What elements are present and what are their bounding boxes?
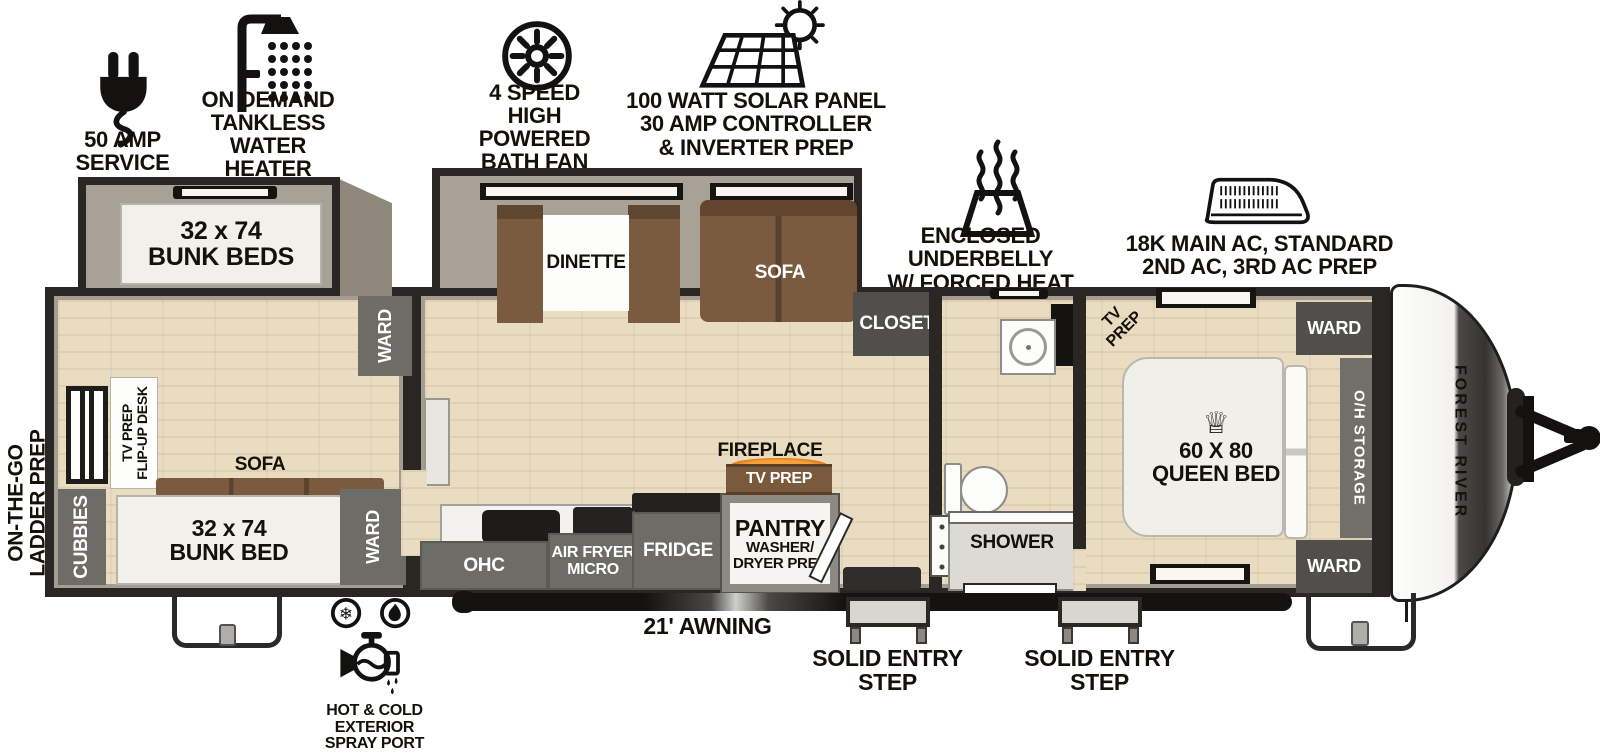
fridge-label: FRIDGE	[643, 541, 713, 561]
shower-label: SHOWER	[968, 532, 1056, 554]
living-sofa	[700, 200, 857, 322]
cubbies-label: CUBBIES	[62, 467, 102, 607]
crown-icon: ♕	[1203, 409, 1230, 439]
brand-label: FOREST RIVER	[1451, 365, 1468, 519]
storage-latch-right	[1351, 621, 1369, 646]
ward-front-top-label: WARD	[1307, 319, 1361, 338]
window-bedroom-top	[1156, 288, 1256, 308]
ward-front-top-box: WARD	[1296, 302, 1372, 355]
ac-unit-icon	[1198, 170, 1313, 232]
bedroom-passage	[1073, 549, 1086, 591]
ladder-prep-label: ON-THE-GO LADDER PREP	[5, 416, 51, 591]
pantry-label: PANTRY	[735, 516, 825, 540]
storage-latch-left	[219, 624, 236, 646]
tv-prep-cabinet: TV PREP	[726, 464, 832, 495]
bed-pillows	[1284, 365, 1308, 539]
queen-bed: ♕ 60 X 80 QUEEN BED	[1122, 357, 1284, 537]
bunk-bed-mattress: 32 x 74 BUNK BED	[116, 495, 342, 585]
feature-label-bath-fan: 4 SPEED HIGH POWERED BATH FAN	[452, 98, 617, 156]
svg-text:❄: ❄	[339, 605, 353, 625]
bunk-beds-label: 32 x 74 BUNK BEDS	[148, 218, 294, 271]
flip-up-desk-label: TV PREP FLIP-UP DESK	[113, 358, 157, 508]
ward-front-bottom-label: WARD	[1307, 557, 1361, 576]
window-bedroom-bottom	[1150, 564, 1250, 584]
solar-panel-icon	[695, 2, 825, 90]
window-sofa	[710, 183, 853, 200]
bunk-sofa-label: SOFA	[215, 454, 305, 476]
dinette-bench-left	[497, 205, 543, 323]
closet-label: CLOSET	[859, 314, 934, 334]
oh-storage-label: O/H STORAGE	[1351, 390, 1367, 506]
roof-vent-bunk-slide	[173, 186, 277, 199]
spray-port-label: HOT & COLD EXTERIOR SPRAY PORT	[292, 706, 457, 750]
wall-shelf-alcove	[424, 398, 450, 486]
ohc-box: OHC	[420, 541, 548, 590]
queen-bed-label: 60 X 80 QUEEN BED	[1152, 439, 1280, 485]
bunk-beds-mattress: 32 x 74 BUNK BEDS	[120, 203, 322, 285]
air-fryer-micro-box: AIR FRYER MICRO	[548, 533, 638, 590]
floorplan-canvas: 50 AMP SERVICE ON DEMAND TANKLESS WATER …	[0, 0, 1600, 753]
ward-front-bottom-box: WARD	[1296, 540, 1372, 593]
shower-glass-door	[948, 511, 1076, 524]
entry-step-1-foot-left	[850, 627, 861, 644]
entry-step-2-foot-right	[1128, 627, 1139, 644]
feature-label-solar: 100 WATT SOLAR PANEL 30 AMP CONTROLLER &…	[625, 93, 887, 155]
entry-step-1	[846, 597, 930, 627]
tv-prep-main-label: TV PREP	[746, 471, 812, 488]
entry-step-2	[1058, 597, 1142, 627]
feature-label-underbelly: ENCLOSED UNDERBELLY W/ FORCED HEAT	[868, 237, 1093, 281]
entry-door-mat	[843, 567, 921, 590]
entry-step-1-label: SOLID ENTRY STEP	[800, 646, 975, 694]
fridge-countertop	[632, 493, 724, 512]
feature-label-water-heater: ON DEMAND TANKLESS WATER HEATER	[192, 103, 344, 165]
hitch-ball	[1577, 426, 1600, 450]
entry-step-2-foot-left	[1062, 627, 1073, 644]
ohc-label: OHC	[463, 556, 504, 576]
entry-step-1-foot-right	[916, 627, 927, 644]
feature-label-ac: 18K MAIN AC, STANDARD 2ND AC, 3RD AC PRE…	[1122, 233, 1397, 277]
dinette-bench-right	[628, 205, 680, 323]
kitchen-stove	[573, 507, 633, 536]
dinette-table: DINETTE	[543, 215, 629, 311]
brand-text-wrap: FOREST RIVER	[1447, 337, 1471, 547]
bath-sink	[1000, 319, 1056, 375]
air-fryer-micro-label: AIR FRYER MICRO	[552, 545, 635, 579]
bunk-bed-label: 32 x 74 BUNK BED	[170, 516, 289, 564]
dinette-label: DINETTE	[546, 253, 625, 273]
ward-upper-left-label: WARD	[365, 266, 405, 406]
spray-port-icon: ❄	[325, 598, 420, 700]
window-dinette	[480, 183, 683, 200]
closet-box: CLOSET	[853, 292, 941, 356]
entry-step-2-label: SOLID ENTRY STEP	[1012, 646, 1187, 694]
wall-bedroom-front	[1372, 287, 1388, 597]
awning-label: 21' AWNING	[630, 612, 785, 640]
roof-vent-bath	[990, 288, 1048, 299]
fridge-box: FRIDGE	[632, 512, 724, 590]
toilet-bowl	[960, 466, 1008, 514]
feature-label-50amp: 50 AMP SERVICE	[35, 138, 210, 164]
ward-lower-left-label: WARD	[353, 467, 393, 607]
living-sofa-label: SOFA	[735, 262, 825, 284]
